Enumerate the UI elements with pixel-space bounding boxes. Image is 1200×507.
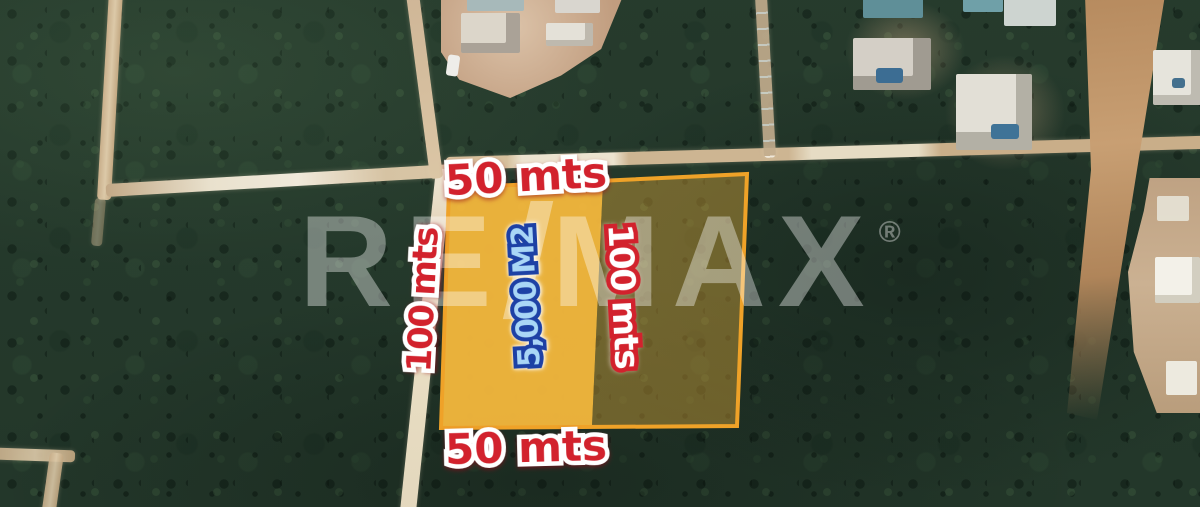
dimension-label-top: 50 mts 50 mts [444,152,608,202]
dimension-label-bottom: 50 mts 50 mts [445,425,608,471]
label-text: 50 mts [444,148,608,205]
registered-trademark-icon: ® [879,216,901,249]
label-text: 5,000 M2 [505,226,547,368]
label-text: 100 mts [599,223,646,369]
listing-photo: RE/MAX® 50 mts 50 mts 50 mts 50 mts 100 … [0,0,1200,507]
dimension-label-left: 100 mts 100 mts [402,227,444,373]
area-label: 5,000 M2 5,000 M2 [508,226,545,367]
dimension-label-inner: 100 mts 100 mts [602,223,644,369]
label-text: 50 mts [444,421,607,474]
label-text: 100 mts [399,227,446,373]
remax-watermark: RE/MAX® [299,186,899,336]
